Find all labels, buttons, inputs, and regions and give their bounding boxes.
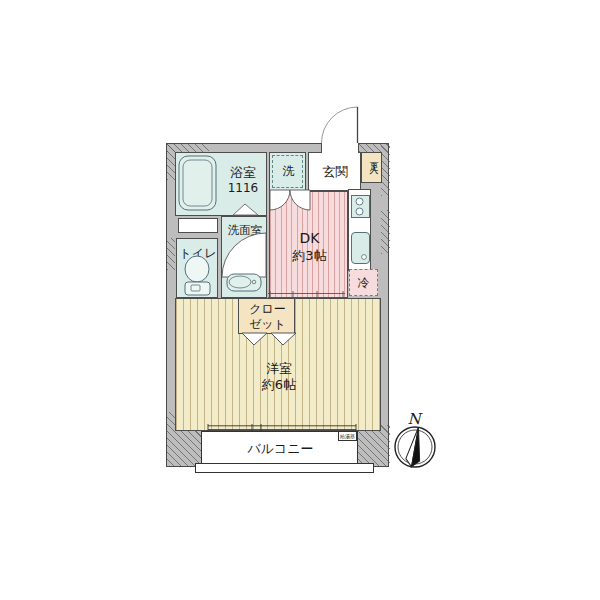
compass-icon: N — [395, 410, 435, 468]
water-heater-label: 給湯器 — [340, 433, 355, 439]
wall-hatch-left-upper — [167, 144, 175, 180]
entrance-door-opening — [321, 143, 359, 153]
water-heater-box: 給湯器 — [338, 431, 357, 441]
wall-hatch-right-upper — [381, 144, 390, 196]
wall-hatch-right-mid — [381, 210, 390, 254]
room-fridge: 冷 — [349, 269, 378, 296]
closet-label: クローゼット — [239, 302, 296, 332]
room-closet: クローゼット — [238, 298, 295, 334]
bathroom-label: 浴室1116 — [220, 165, 266, 196]
balcony-rail — [195, 463, 374, 473]
room-entrance: 玄関 — [308, 152, 361, 191]
north-label: N — [407, 410, 423, 428]
balcony-label: バルコニー — [202, 441, 359, 457]
toilet-label: トイレ — [177, 246, 219, 261]
room-bathroom: 浴室1116 — [175, 152, 267, 216]
room-balcony: バルコニー — [201, 431, 358, 465]
washroom-counter — [178, 218, 218, 233]
kitchen-sink-icon — [351, 232, 370, 264]
wall-hatch-bottom-right — [358, 425, 390, 467]
room-shoe-box: 下足入 — [361, 152, 382, 183]
floorplan: 浴室1116 洗 玄関 下足入 DK約3帖 冷 洗面室 トイレ 洋室約6帖 クロ… — [166, 143, 389, 467]
western-room-label: 洋室約6帖 — [231, 361, 327, 394]
washroom-label: 洗面室 — [222, 223, 268, 237]
room-washroom: 洗面室 — [221, 216, 267, 298]
room-dk: DK約3帖 — [269, 191, 348, 298]
room-toilet: トイレ — [176, 238, 218, 298]
entrance-door-icon — [322, 107, 358, 143]
stove-icon — [351, 195, 370, 218]
room-washer: 洗 — [269, 152, 306, 191]
fridge-label: 冷 — [350, 276, 377, 291]
washer-label: 洗 — [270, 164, 307, 179]
wall-hatch-left-mid — [167, 238, 175, 270]
dk-label: DK約3帖 — [270, 230, 349, 264]
shoe-box-label: 下足入 — [367, 155, 380, 158]
entrance-label: 玄関 — [309, 164, 362, 180]
